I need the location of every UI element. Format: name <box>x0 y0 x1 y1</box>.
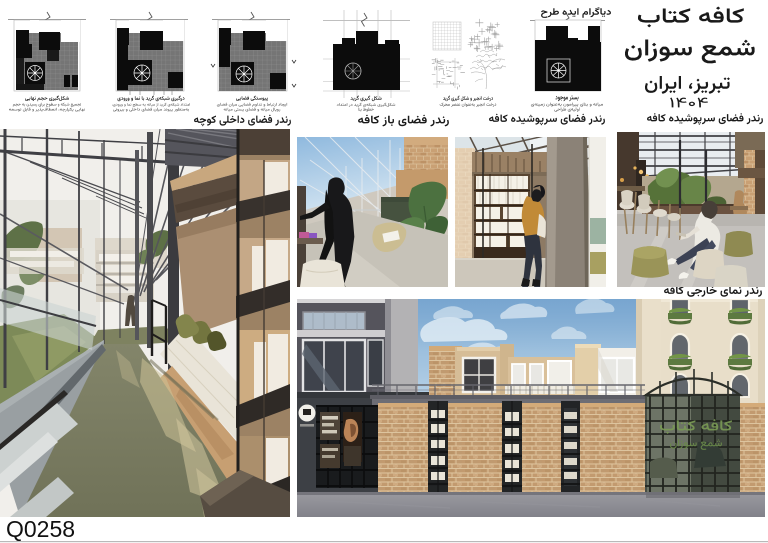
svg-text:Q0258: Q0258 <box>6 516 75 542</box>
